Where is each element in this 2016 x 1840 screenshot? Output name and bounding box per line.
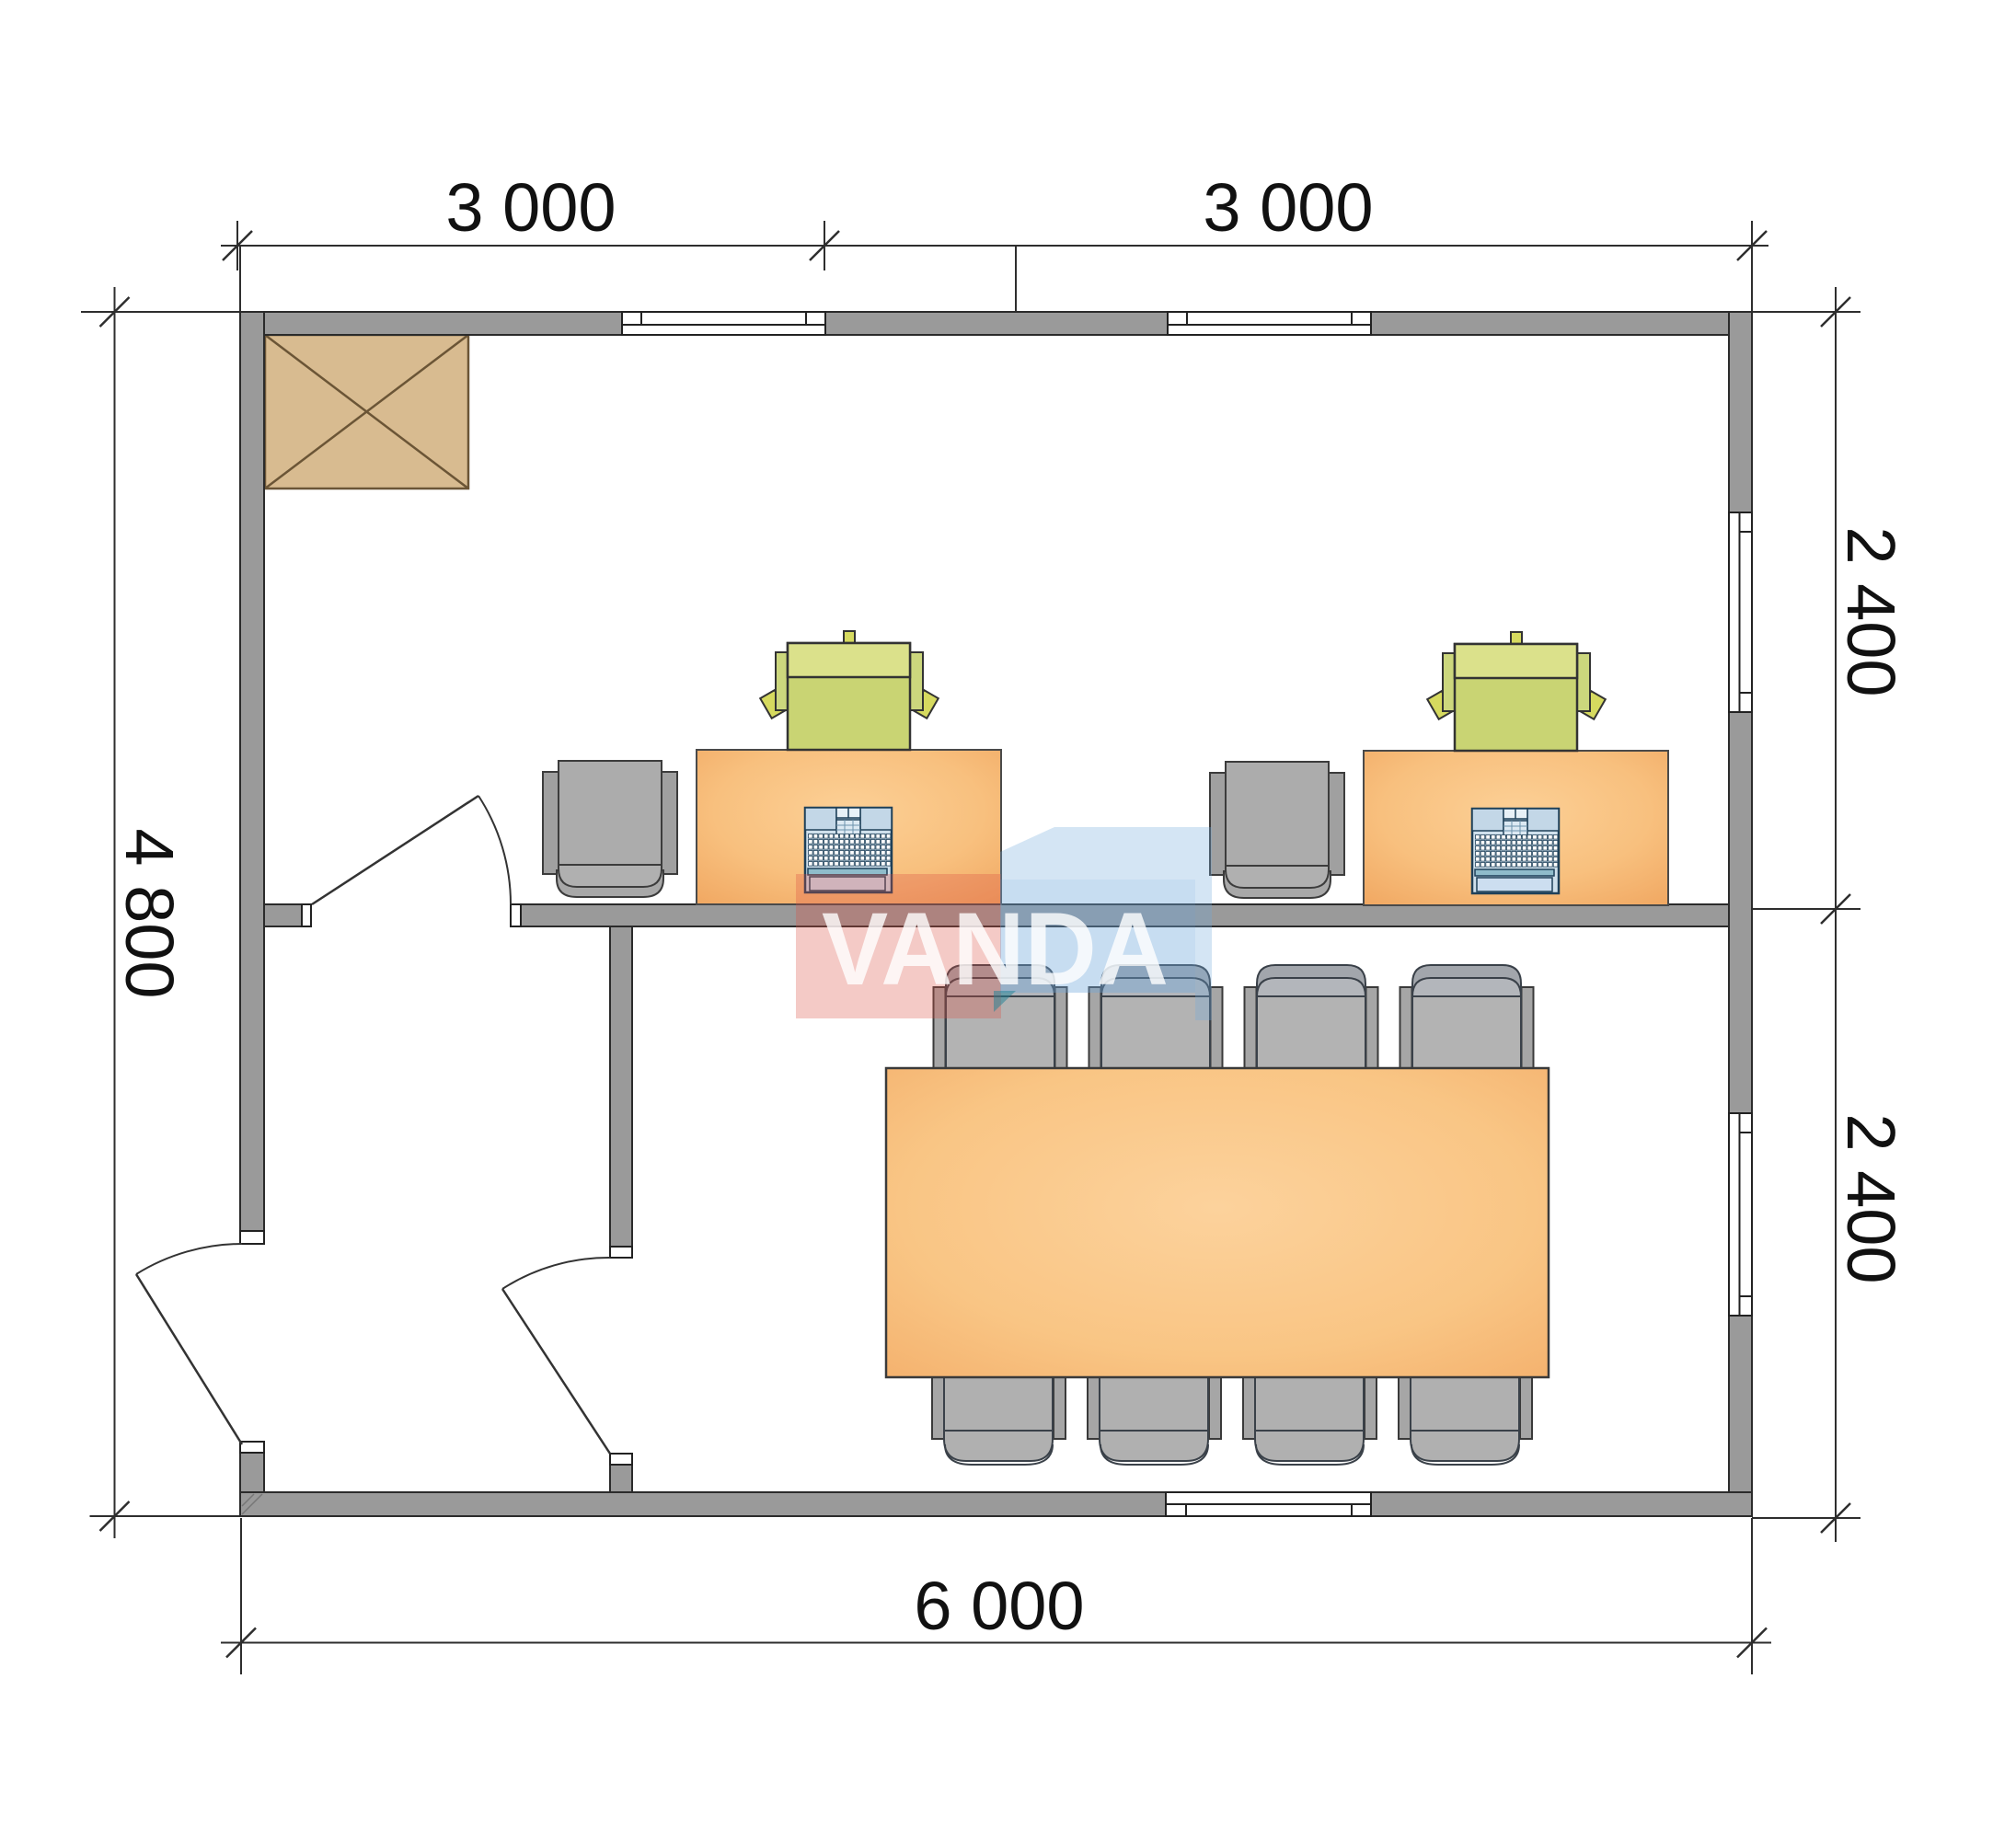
svg-text:3 000: 3 000 [1203, 169, 1373, 246]
svg-text:2 400: 2 400 [1833, 1113, 1909, 1283]
svg-text:6 000: 6 000 [914, 1568, 1084, 1644]
svg-text:4 800: 4 800 [111, 828, 188, 998]
svg-text:3 000: 3 000 [445, 169, 616, 246]
svg-text:VANDA: VANDA [822, 891, 1169, 1006]
svg-text:2 400: 2 400 [1833, 526, 1909, 696]
